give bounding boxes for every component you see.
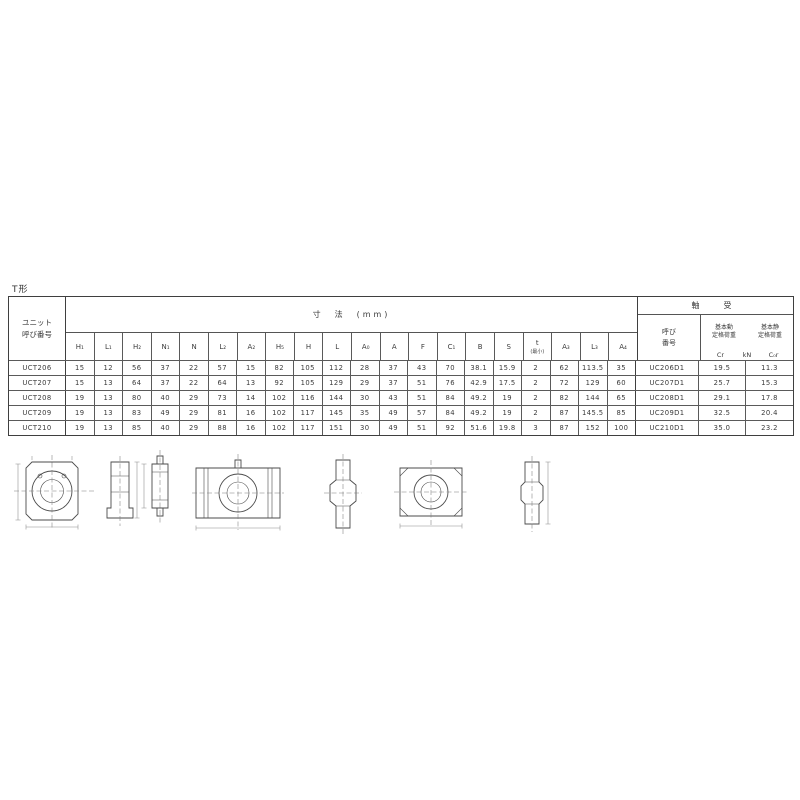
dimension-cell: 29 [350, 376, 379, 390]
drawing-uct-front-view [12, 450, 96, 538]
dim-column-header: A₀ [351, 333, 380, 360]
dimension-cell: 22 [179, 361, 208, 375]
dimension-cell: 145 [322, 406, 351, 420]
dimension-cell: 117 [293, 406, 322, 420]
dim-column-header: H [294, 333, 323, 360]
dim-column-header: A₂ [237, 333, 266, 360]
dimension-cell: 51 [407, 376, 436, 390]
c0r-value-cell: 20.4 [745, 406, 793, 420]
dimension-cell: 145.5 [578, 406, 607, 420]
dimension-cell: 87 [550, 406, 579, 420]
dimension-cell: 42.9 [464, 376, 493, 390]
dimension-cell: 81 [208, 406, 237, 420]
dimension-cell: 19 [493, 406, 522, 420]
dimension-cell: 13 [236, 376, 265, 390]
table-body: UCT20615125637225715821051122837437038.1… [9, 360, 793, 435]
dimension-cell: 92 [265, 376, 294, 390]
dimension-cell: 49 [379, 406, 408, 420]
dimension-cell: 13 [94, 391, 123, 405]
dimensions-section: 寸 法 (mm) H₁L₁H₂N₁NL₂A₂H₅HLA₀AFC₁BSt(最小)A… [66, 297, 637, 360]
dim-column-header: L [322, 333, 351, 360]
dimension-cell: 2 [521, 376, 550, 390]
load-rating-units: Cr kN C₀r [701, 349, 793, 360]
bearing-number-cell: UC207D1 [635, 376, 698, 390]
table-row: UCT210191385402988161021171513049519251.… [9, 420, 793, 435]
dimension-cell: 102 [265, 421, 294, 435]
dynamic-load-label: 基本動 定格荷重 [701, 324, 747, 340]
dim-column-header: H₅ [265, 333, 294, 360]
bearing-number-cell: UC206D1 [635, 361, 698, 375]
bearing-number-header: 呼び 番号 [638, 315, 701, 360]
dimension-cell: 29 [179, 406, 208, 420]
dimension-cell: 70 [436, 361, 465, 375]
dimension-cell: 40 [151, 421, 180, 435]
dimension-cell: 16 [236, 421, 265, 435]
dimension-cell: 85 [607, 406, 636, 420]
dimension-cell: 129 [578, 376, 607, 390]
dim-column-header: A₄ [608, 333, 637, 360]
bearing-number-cell: UC210D1 [635, 421, 698, 435]
dimension-cell: 22 [179, 376, 208, 390]
dimension-cell: 15.9 [493, 361, 522, 375]
dimension-cell: 51.6 [464, 421, 493, 435]
c0r-value-cell: 23.2 [745, 421, 793, 435]
dimension-cell: 88 [208, 421, 237, 435]
dimension-cell: 14 [236, 391, 265, 405]
dimension-cell: 102 [265, 406, 294, 420]
dim-column-header: N [179, 333, 208, 360]
load-rating-header: 基本動 定格荷重 基本静 定格荷重 Cr kN C₀r [701, 315, 793, 360]
dimension-cell: 13 [94, 406, 123, 420]
table-row: UCT20715136437226413921051292937517642.9… [9, 375, 793, 390]
cr-value-cell: 35.0 [698, 421, 745, 435]
dimension-cell: 56 [122, 361, 151, 375]
dimension-cell: 144 [322, 391, 351, 405]
dimension-cell: 2 [521, 361, 550, 375]
dimension-cell: 92 [436, 421, 465, 435]
dimension-cell: 57 [208, 361, 237, 375]
c0r-value-cell: 11.3 [745, 361, 793, 375]
dimension-cell: 62 [550, 361, 579, 375]
c0r-value-cell: 17.8 [745, 391, 793, 405]
dim-column-header: A₃ [551, 333, 580, 360]
unit-number-cell: UCT207 [9, 376, 66, 390]
bearing-subheader: 呼び 番号 基本動 定格荷重 基本静 定格荷重 [638, 315, 793, 360]
cr-symbol: Cr [701, 351, 740, 359]
cr-value-cell: 19.5 [698, 361, 745, 375]
load-rating-labels: 基本動 定格荷重 基本静 定格荷重 [701, 315, 793, 349]
dimension-cell: 64 [122, 376, 151, 390]
bearing-section: 軸 受 呼び 番号 基本動 定格荷重 基本静 [637, 297, 793, 360]
unit-number-cell: UCT209 [9, 406, 66, 420]
dim-column-header: L₂ [208, 333, 237, 360]
dimension-cell: 35 [350, 406, 379, 420]
dimensions-title: 寸 法 (mm) [66, 297, 637, 333]
unit-header-line1: ユニット [22, 317, 52, 329]
kn-unit: kN [740, 351, 754, 359]
dimension-cell: 82 [265, 361, 294, 375]
dimension-cell: 65 [607, 391, 636, 405]
dimension-cell: 84 [436, 391, 465, 405]
dimension-cell: 64 [208, 376, 237, 390]
dimension-cell: 105 [293, 361, 322, 375]
dimension-cell: 13 [94, 421, 123, 435]
dimension-cell: 113.5 [578, 361, 607, 375]
cr-value-cell: 32.5 [698, 406, 745, 420]
dim-column-header: C₁ [437, 333, 466, 360]
bearing-number-cell: UC209D1 [635, 406, 698, 420]
static-load-label: 基本静 定格荷重 [747, 324, 793, 340]
unit-number-cell: UCT210 [9, 421, 66, 435]
cr-value-cell: 25.7 [698, 376, 745, 390]
dimension-cell: 87 [550, 421, 579, 435]
dimension-cell: 15 [66, 376, 94, 390]
dimension-cell: 30 [350, 391, 379, 405]
dimension-cell: 83 [122, 406, 151, 420]
dimension-cell: 16 [236, 406, 265, 420]
dimension-cell: 19 [66, 391, 94, 405]
dimension-cell: 13 [94, 376, 123, 390]
bearing-title: 軸 受 [638, 297, 793, 315]
dimension-cell: 12 [94, 361, 123, 375]
dimension-cell: 37 [379, 361, 408, 375]
dimension-cell: 19 [493, 391, 522, 405]
dimension-cell: 2 [521, 406, 550, 420]
dimension-cell: 129 [322, 376, 351, 390]
dimension-cell: 29 [179, 421, 208, 435]
table-header: ユニット 呼び番号 寸 法 (mm) H₁L₁H₂N₁NL₂A₂H₅HLA₀AF… [9, 297, 793, 360]
dimension-cell: 49 [379, 421, 408, 435]
dimension-cell: 35 [607, 361, 636, 375]
dimension-cell: 100 [607, 421, 636, 435]
drawing-take-up-frame-side-view [134, 448, 184, 534]
dim-column-header: H₁ [66, 333, 94, 360]
dimension-cell: 117 [293, 421, 322, 435]
dim-column-header: L₁ [94, 333, 123, 360]
dim-column-header: N₁ [151, 333, 180, 360]
dim-column-header: S [494, 333, 523, 360]
dimension-cell: 144 [578, 391, 607, 405]
dimension-cell: 60 [607, 376, 636, 390]
unit-number-cell: UCT208 [9, 391, 66, 405]
unit-number-cell: UCT206 [9, 361, 66, 375]
bearing-number-cell: UC208D1 [635, 391, 698, 405]
dimension-cell: 37 [151, 361, 180, 375]
dimension-cell: 85 [122, 421, 151, 435]
dimension-cell: 17.5 [493, 376, 522, 390]
dimension-cell: 19.8 [493, 421, 522, 435]
dimension-cell: 19 [66, 406, 94, 420]
dimension-cell: 151 [322, 421, 351, 435]
drawing-uct-side-profile [316, 452, 368, 538]
table-row: UCT20615125637225715821051122837437038.1… [9, 360, 793, 375]
dimension-cell: 37 [151, 376, 180, 390]
dim-column-header: t(最小) [523, 333, 552, 360]
c0r-value-cell: 15.3 [745, 376, 793, 390]
dimension-cell: 112 [322, 361, 351, 375]
dimension-cell: 43 [379, 391, 408, 405]
dimension-cell: 152 [578, 421, 607, 435]
dimension-cell: 72 [550, 376, 579, 390]
dimension-cell: 84 [436, 406, 465, 420]
dim-symbol-row: H₁L₁H₂N₁NL₂A₂H₅HLA₀AFC₁BSt(最小)A₃L₃A₄ [66, 333, 637, 360]
unit-number-header: ユニット 呼び番号 [9, 297, 66, 360]
dimension-cell: 105 [293, 376, 322, 390]
dimension-cell: 49.2 [464, 406, 493, 420]
drawing-uct-front-view-small [392, 452, 470, 538]
dimension-cell: 82 [550, 391, 579, 405]
dimension-cell: 76 [436, 376, 465, 390]
dimension-cell: 49 [151, 406, 180, 420]
dimension-cell: 15 [236, 361, 265, 375]
table-row: UCT208191380402973141021161443043518449.… [9, 390, 793, 405]
dim-column-header: A [380, 333, 409, 360]
dimension-cell: 40 [151, 391, 180, 405]
drawing-uct-front-view-wide [186, 452, 290, 538]
drawing-uct-side-profile-2 [504, 452, 556, 538]
dimension-table: ユニット 呼び番号 寸 法 (mm) H₁L₁H₂N₁NL₂A₂H₅HLA₀AF… [8, 296, 794, 436]
bearing-no-line1: 呼び [662, 327, 676, 338]
bearing-no-line2: 番号 [662, 338, 676, 349]
dimension-cell: 116 [293, 391, 322, 405]
table-row: UCT209191383492981161021171453549578449.… [9, 405, 793, 420]
dim-column-header: B [465, 333, 494, 360]
unit-header-line2: 呼び番号 [22, 329, 52, 341]
dimension-cell: 43 [407, 361, 436, 375]
dimension-cell: 51 [407, 391, 436, 405]
dimension-cell: 80 [122, 391, 151, 405]
cr-value-cell: 29.1 [698, 391, 745, 405]
dimension-cell: 30 [350, 421, 379, 435]
catalog-page: T形 ユニット 呼び番号 寸 法 (mm) H₁L₁H₂N₁NL₂A₂H₅HLA… [0, 0, 800, 800]
dimension-cell: 29 [179, 391, 208, 405]
dimension-cell: 28 [350, 361, 379, 375]
dimension-cell: 15 [66, 361, 94, 375]
dimension-cell: 2 [521, 391, 550, 405]
dimension-cell: 73 [208, 391, 237, 405]
dim-column-header: H₂ [122, 333, 151, 360]
dimension-cell: 57 [407, 406, 436, 420]
dimension-cell: 37 [379, 376, 408, 390]
dimension-cell: 51 [407, 421, 436, 435]
dimension-cell: 38.1 [464, 361, 493, 375]
dim-column-header: F [408, 333, 437, 360]
dimension-cell: 49.2 [464, 391, 493, 405]
dimension-cell: 19 [66, 421, 94, 435]
dimension-cell: 102 [265, 391, 294, 405]
c0r-symbol: C₀r [754, 351, 793, 359]
section-label: T形 [10, 282, 59, 297]
dimension-cell: 3 [521, 421, 550, 435]
dim-column-header: L₃ [580, 333, 609, 360]
